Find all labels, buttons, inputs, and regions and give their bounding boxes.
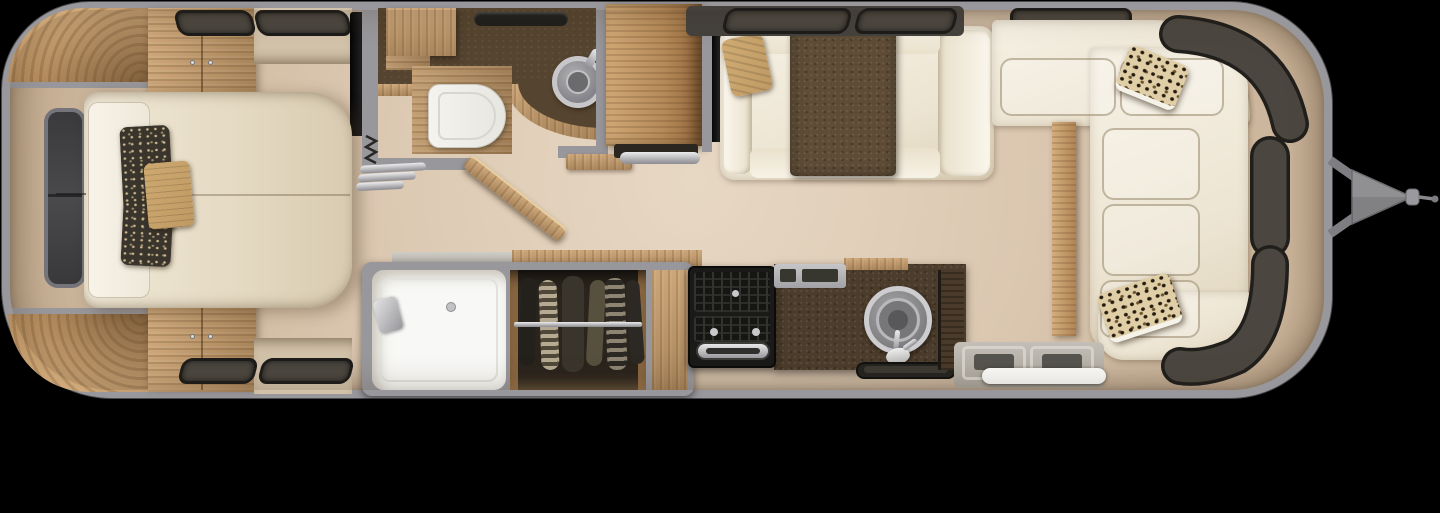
tow-hitch — [1330, 160, 1439, 234]
floorplan-svg-layer — [0, 0, 1440, 513]
wraparound-window-band — [1178, 34, 1290, 367]
accordion-door-zigzag — [366, 136, 376, 163]
floorplan-canvas — [0, 0, 1440, 513]
